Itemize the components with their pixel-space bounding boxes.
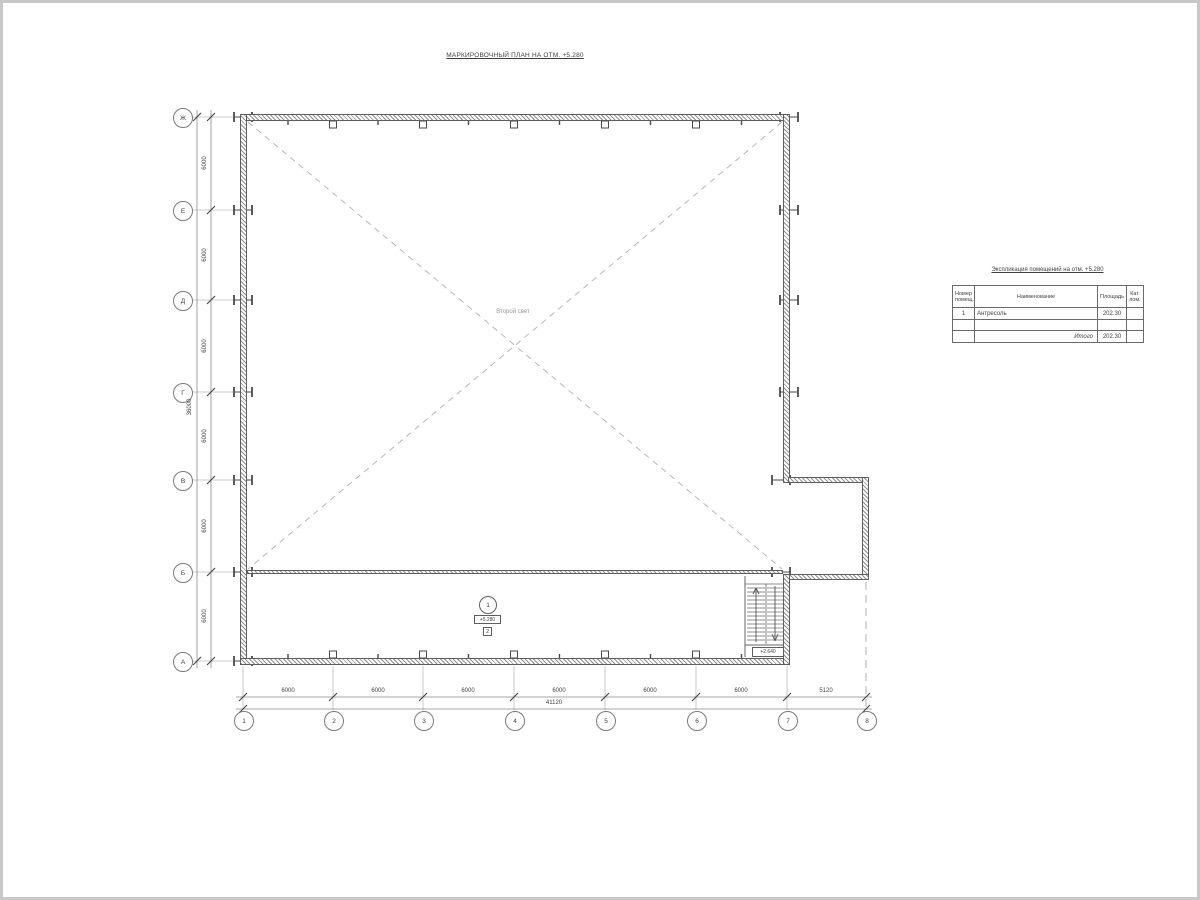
cell-blank [1127, 331, 1144, 343]
cell-area: 202.30 [1098, 308, 1127, 320]
dim-bottom-1: 6000 [268, 687, 308, 695]
drawing-sheet: МАРКИРОВОЧНЫЙ ПЛАН НА ОТМ. +5.280 Ж Е Д … [0, 0, 1200, 900]
axis-bubble-col-2: 2 [324, 711, 344, 731]
header-category: Кат. пом. [1127, 286, 1144, 308]
axis-label: 7 [786, 718, 790, 725]
wall-right-lower [783, 574, 790, 665]
axis-bubble-col-6: 6 [687, 711, 707, 731]
dim-bottom-5: 6000 [630, 687, 670, 695]
header-area: Площадь [1098, 286, 1127, 308]
floor-type-mark: 2 [483, 627, 492, 636]
room-elevation-mark: +5.280 [474, 615, 501, 624]
axis-label: Д [181, 298, 185, 305]
table-row: 1 Антресоль 202.30 [953, 308, 1144, 320]
cell-blank [953, 320, 975, 331]
axis-bubble-row-e: Е [173, 201, 193, 221]
table-empty-row [953, 320, 1144, 331]
table-total-row: Итого 202.30 [953, 331, 1144, 343]
cell-name: Антресоль [975, 308, 1098, 320]
dim-left-3: 6000 [201, 326, 209, 366]
axis-bubble-col-4: 4 [505, 711, 525, 731]
total-area: 202.30 [1098, 331, 1127, 343]
axis-bubble-row-v: В [173, 471, 193, 491]
dim-bottom-6: 6000 [721, 687, 761, 695]
dim-bottom-4: 6000 [539, 687, 579, 695]
axis-label: Б [181, 570, 185, 577]
void-label: Второй свет [473, 308, 553, 316]
axis-label: В [181, 478, 185, 485]
axis-bubble-row-b: Б [173, 563, 193, 583]
axis-bubble-col-8: 8 [857, 711, 877, 731]
dim-left-total: 36000 [186, 387, 194, 427]
dim-left-4: 6000 [201, 416, 209, 456]
axis-label: 6 [695, 718, 699, 725]
axis-bubble-row-a: А [173, 652, 193, 672]
axis-label: 8 [865, 718, 869, 725]
axis-label: Ж [180, 115, 186, 122]
header-name: Наименование [975, 286, 1098, 308]
wall-left [240, 114, 247, 665]
axis-label: 1 [242, 718, 246, 725]
axis-bubble-row-d: Д [173, 291, 193, 311]
plan-linework [0, 0, 1200, 900]
mezzanine-edge [247, 570, 783, 574]
wall-right-upper [783, 114, 790, 483]
table-header-row: Номер помещ. Наименование Площадь Кат. п… [953, 286, 1144, 308]
dim-bottom-2: 6000 [358, 687, 398, 695]
axis-label: Е [181, 208, 185, 215]
table-title: Экспликация помещений на отм. +5.280 [952, 267, 1143, 273]
room-number-marker: 1 [479, 596, 497, 614]
cell-number: 1 [953, 308, 975, 320]
cell-category [1127, 308, 1144, 320]
dim-bottom-total: 41120 [534, 699, 574, 707]
axis-label: 2 [332, 718, 336, 725]
wall-annex-top [788, 477, 869, 483]
axis-label: А [181, 659, 185, 666]
dim-left-2: 6000 [201, 235, 209, 275]
stair-elevation-mark: +2.640 [752, 647, 784, 657]
header-number: Номер помещ. [953, 286, 975, 308]
cell-blank [1098, 320, 1127, 331]
axis-bubble-col-3: 3 [414, 711, 434, 731]
total-label: Итого [975, 331, 1098, 343]
dim-left-6: 6000 [201, 596, 209, 636]
room-table: Номер помещ. Наименование Площадь Кат. п… [952, 285, 1144, 343]
axis-label: 4 [513, 718, 517, 725]
axis-label: Г [181, 390, 185, 397]
cell-blank [1127, 320, 1144, 331]
room-explication: Экспликация помещений на отм. +5.280 Ном… [952, 267, 1143, 343]
wall-annex-right [862, 477, 869, 580]
cell-blank [975, 320, 1098, 331]
axis-bubble-col-7: 7 [778, 711, 798, 731]
drawing-title: МАРКИРОВОЧНЫЙ ПЛАН НА ОТМ. +5.280 [395, 52, 635, 60]
dim-bottom-3: 6000 [448, 687, 488, 695]
wall-annex-bottom [788, 574, 869, 580]
cell-blank [953, 331, 975, 343]
wall-top [240, 114, 790, 121]
wall-bottom [240, 658, 790, 665]
dim-bottom-7: 5120 [806, 687, 846, 695]
axis-bubble-col-1: 1 [234, 711, 254, 731]
dim-left-5: 6000 [201, 506, 209, 546]
room-number: 1 [486, 602, 490, 609]
axis-bubble-col-5: 5 [596, 711, 616, 731]
axis-bubble-row-zh: Ж [173, 108, 193, 128]
axis-label: 3 [422, 718, 426, 725]
axis-label: 5 [604, 718, 608, 725]
dim-left-1: 6000 [201, 143, 209, 183]
